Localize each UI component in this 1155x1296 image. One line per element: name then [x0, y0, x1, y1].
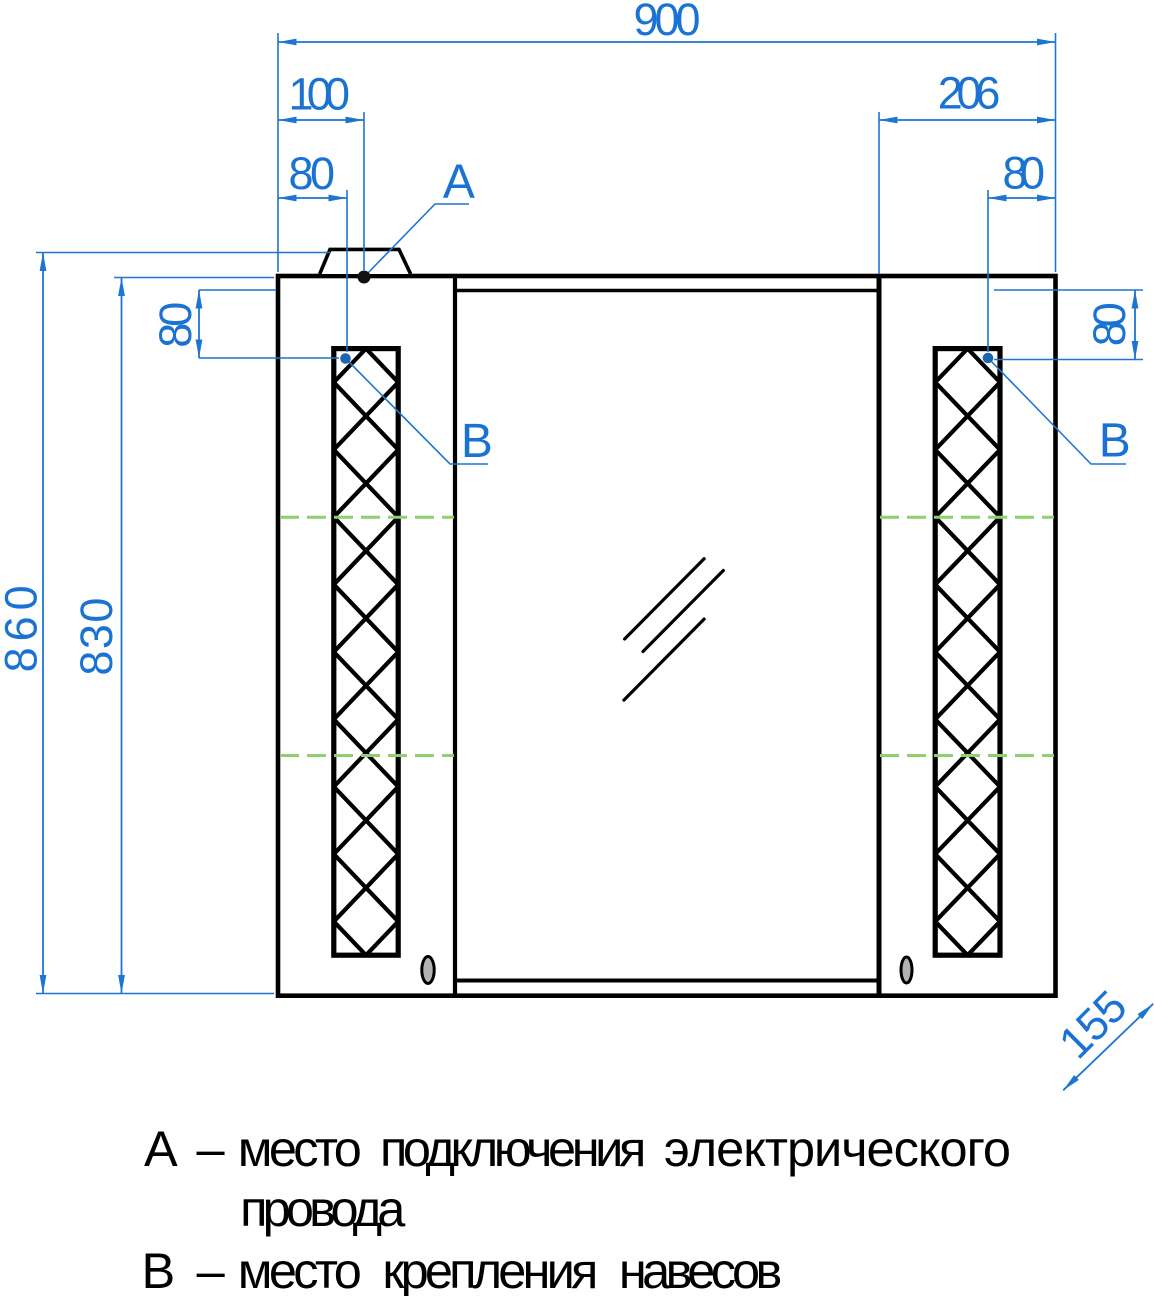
svg-text:80: 80 [1003, 148, 1046, 199]
svg-text:206: 206 [938, 68, 1001, 119]
svg-text:900: 900 [634, 0, 701, 45]
svg-text:крепления: крепления [382, 1242, 598, 1296]
svg-text:А: А [144, 1120, 178, 1177]
svg-text:провода: провода [240, 1180, 406, 1237]
svg-text:80: 80 [289, 148, 336, 199]
svg-text:–: – [197, 1242, 226, 1296]
svg-text:860: 860 [0, 585, 47, 672]
svg-text:электрического: электрического [664, 1120, 1011, 1177]
svg-text:B: B [1099, 415, 1131, 468]
svg-text:B: B [461, 415, 493, 468]
svg-text:830: 830 [71, 598, 122, 676]
svg-text:A: A [443, 156, 475, 209]
svg-text:80: 80 [1084, 302, 1135, 346]
svg-text:–: – [197, 1120, 226, 1177]
svg-text:навесов: навесов [619, 1242, 782, 1296]
svg-text:место: место [238, 1120, 362, 1177]
svg-text:80: 80 [150, 302, 201, 348]
svg-text:В: В [142, 1242, 176, 1296]
svg-text:место: место [238, 1242, 362, 1296]
svg-text:100: 100 [289, 69, 351, 120]
svg-text:подключения: подключения [380, 1120, 646, 1177]
